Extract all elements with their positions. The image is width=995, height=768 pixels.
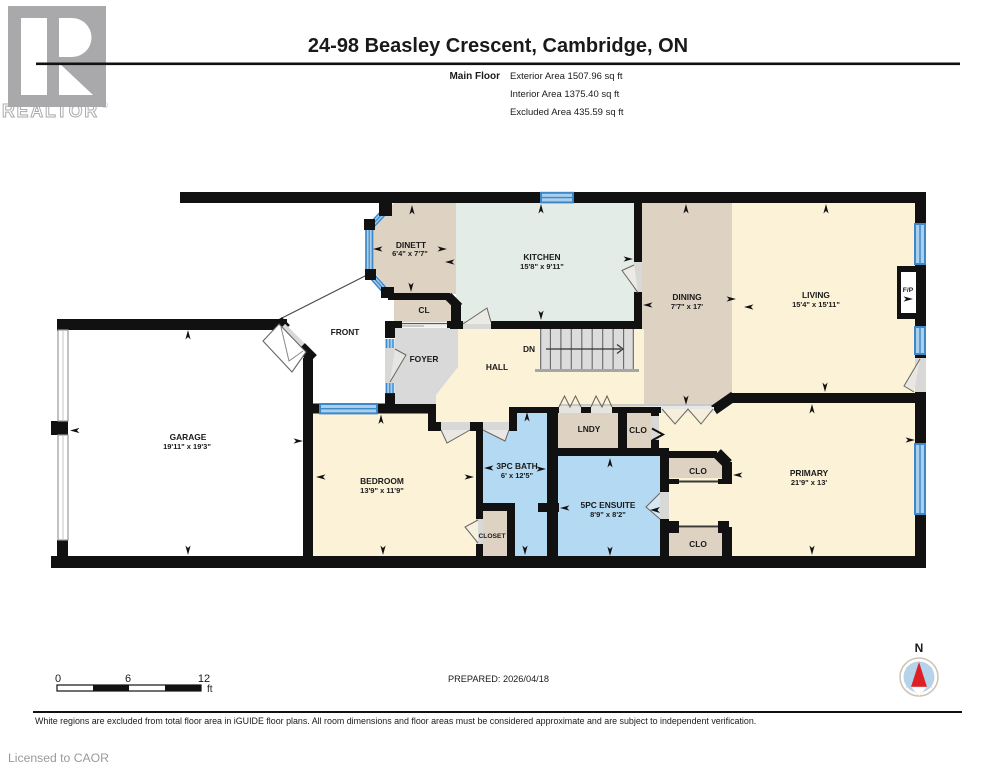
svg-text:7'7" x 17': 7'7" x 17'	[671, 302, 703, 311]
svg-text:LIVING: LIVING	[802, 290, 830, 300]
svg-text:HALL: HALL	[486, 362, 508, 372]
svg-text:CLOSET: CLOSET	[478, 533, 506, 540]
svg-text:15'8" x 9'11": 15'8" x 9'11"	[520, 262, 564, 271]
svg-text:N: N	[915, 641, 924, 655]
svg-text:CL: CL	[418, 305, 429, 315]
svg-text:24-98 Beasley Crescent, Cambri: 24-98 Beasley Crescent, Cambridge, ON	[308, 35, 688, 57]
svg-text:Excluded Area 435.59 sq ft: Excluded Area 435.59 sq ft	[510, 107, 624, 118]
svg-text:6: 6	[125, 673, 131, 685]
svg-text:6'4" x 7'7": 6'4" x 7'7"	[392, 249, 428, 258]
svg-text:Licensed to CAOR: Licensed to CAOR	[8, 751, 109, 765]
svg-text:FRONT: FRONT	[331, 327, 361, 337]
svg-text:CLO: CLO	[689, 466, 707, 476]
svg-text:BEDROOM: BEDROOM	[360, 476, 404, 486]
svg-text:REALTOR: REALTOR	[2, 100, 99, 121]
svg-text:®: ®	[102, 101, 108, 110]
svg-text:DINING: DINING	[672, 292, 701, 302]
svg-text:6' x 12'5": 6' x 12'5"	[501, 471, 534, 480]
svg-text:F/P: F/P	[903, 287, 914, 294]
svg-text:15'4" x 15'11": 15'4" x 15'11"	[792, 300, 840, 309]
svg-text:0: 0	[55, 673, 61, 685]
svg-text:13'9" x 11'9": 13'9" x 11'9"	[360, 486, 404, 495]
svg-text:Main Floor: Main Floor	[449, 71, 500, 82]
svg-text:White regions are excluded fro: White regions are excluded from total fl…	[35, 716, 756, 726]
svg-text:FOYER: FOYER	[410, 354, 439, 364]
svg-text:Interior Area 1375.40 sq ft: Interior Area 1375.40 sq ft	[510, 89, 620, 100]
svg-text:5PC ENSUITE: 5PC ENSUITE	[581, 500, 636, 510]
svg-text:ft: ft	[207, 684, 213, 695]
svg-text:PREPARED: 2026/04/18: PREPARED: 2026/04/18	[448, 674, 549, 684]
svg-text:CLO: CLO	[689, 539, 707, 549]
svg-text:Exterior Area 1507.96 sq ft: Exterior Area 1507.96 sq ft	[510, 71, 623, 82]
svg-text:21'9" x 13': 21'9" x 13'	[791, 478, 828, 487]
svg-text:8'9" x 8'2": 8'9" x 8'2"	[590, 510, 626, 519]
svg-text:3PC BATH: 3PC BATH	[496, 461, 537, 471]
svg-text:GARAGE: GARAGE	[170, 432, 207, 442]
svg-text:LNDY: LNDY	[578, 424, 601, 434]
svg-text:CLO: CLO	[629, 425, 647, 435]
svg-text:19'11" x 19'3": 19'11" x 19'3"	[163, 442, 211, 451]
svg-text:PRIMARY: PRIMARY	[790, 468, 829, 478]
svg-text:DN: DN	[523, 344, 535, 354]
svg-text:KITCHEN: KITCHEN	[523, 252, 560, 262]
